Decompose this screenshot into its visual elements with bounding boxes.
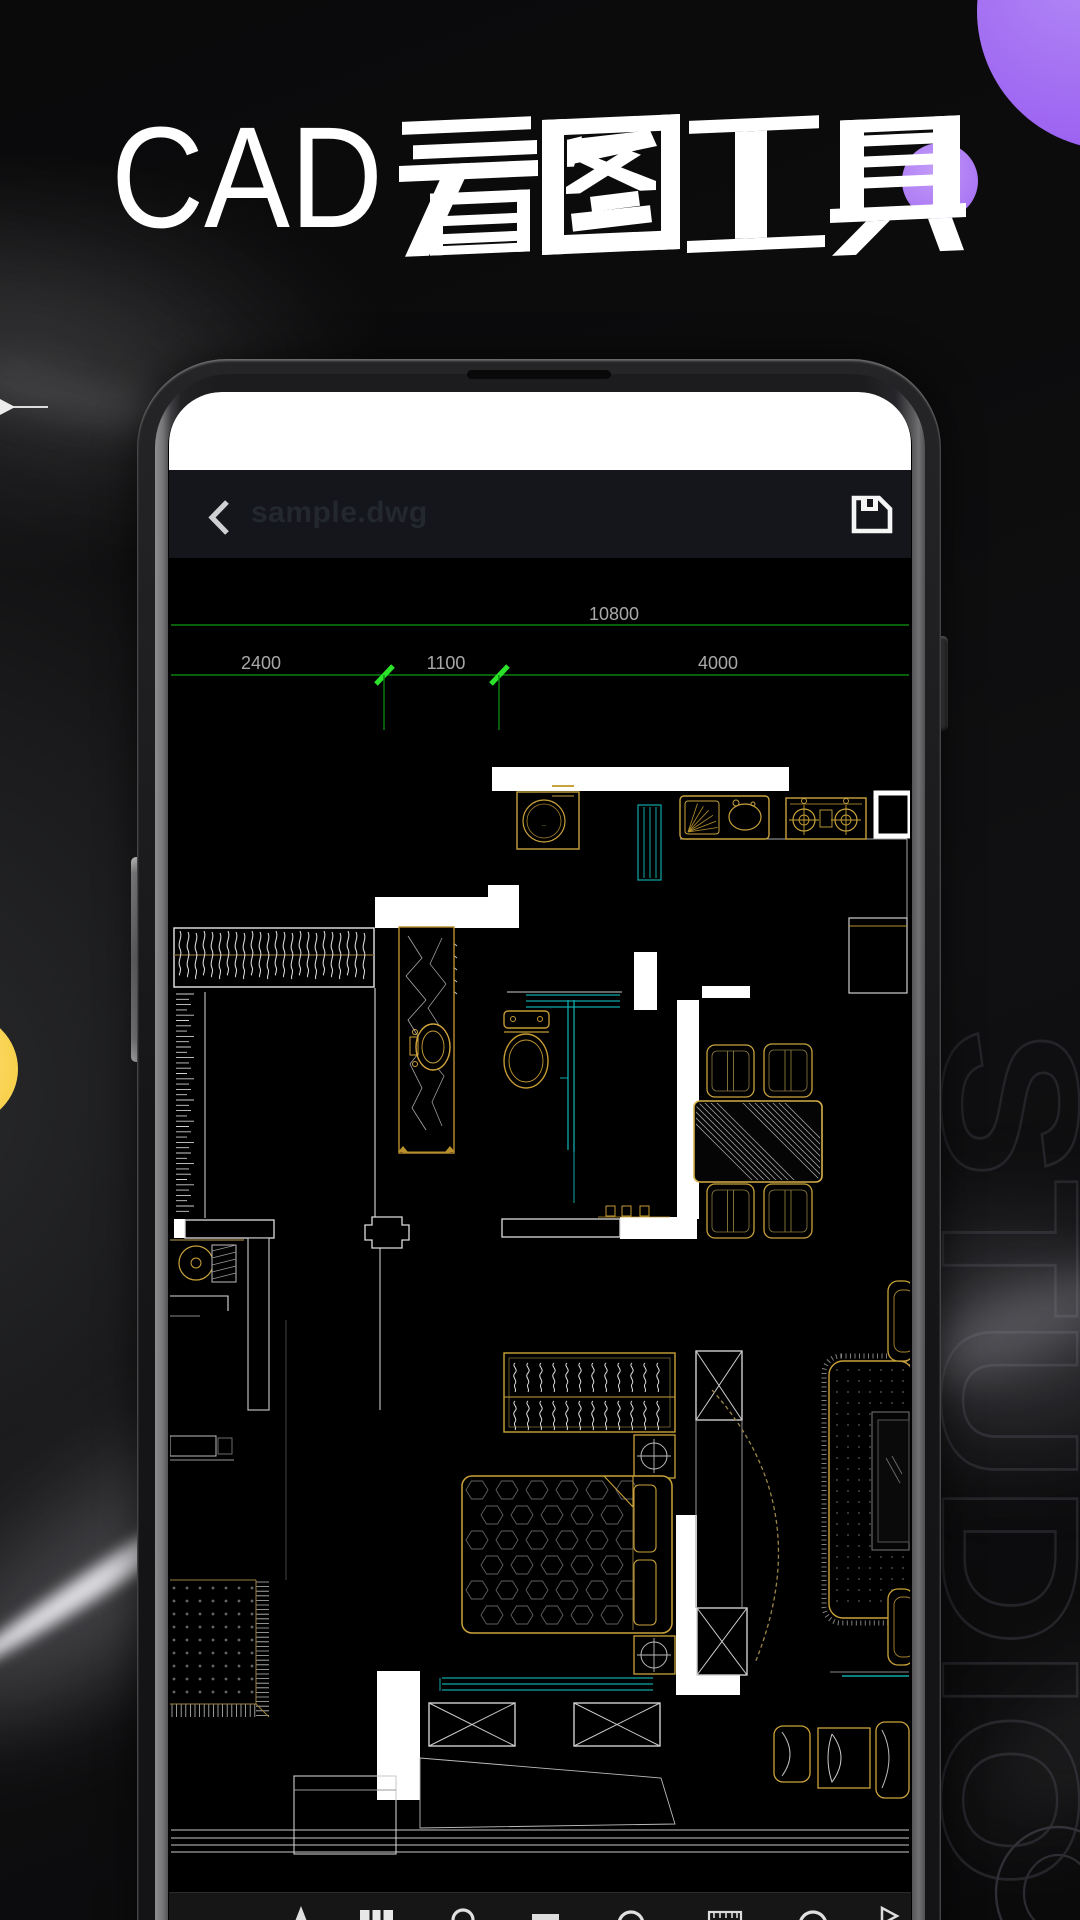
svg-text:CAD: CAD [111,97,383,258]
svg-text:2400: 2400 [241,653,281,673]
svg-text:4000: 4000 [698,653,738,673]
svg-text:..: .. [542,819,546,828]
svg-text:1100: 1100 [427,653,466,673]
svg-text:10800: 10800 [589,604,639,624]
